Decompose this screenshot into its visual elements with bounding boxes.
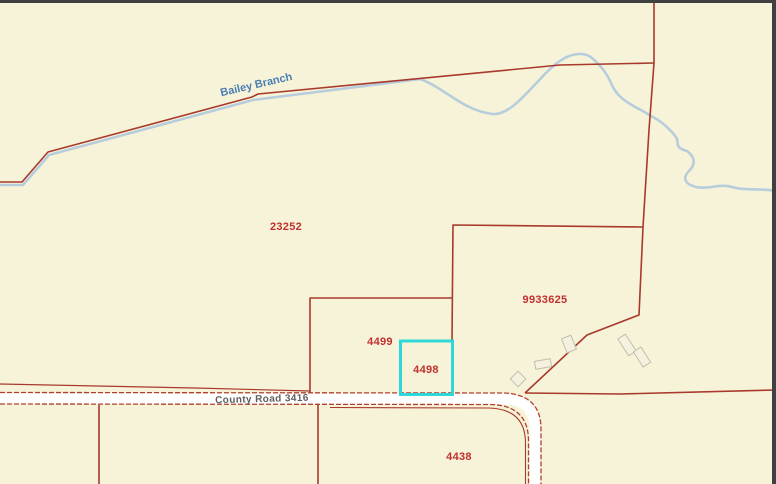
- frame-border-right: [772, 0, 776, 484]
- parcel-label-4438: 4438: [446, 451, 472, 463]
- parcel-label-9933625: 9933625: [523, 294, 568, 306]
- gis-map-viewport[interactable]: 23252 9933625 4499 4498 4438 Bailey Bran…: [0, 0, 776, 484]
- parcel-label-4499: 4499: [367, 336, 393, 348]
- frame-border-top: [0, 0, 776, 3]
- parcel-label-23252: 23252: [270, 221, 302, 233]
- parcel-label-4498: 4498: [413, 364, 439, 376]
- parcel-map-canvas[interactable]: 23252 9933625 4499 4498 4438 Bailey Bran…: [0, 0, 776, 484]
- map-background: [0, 0, 776, 484]
